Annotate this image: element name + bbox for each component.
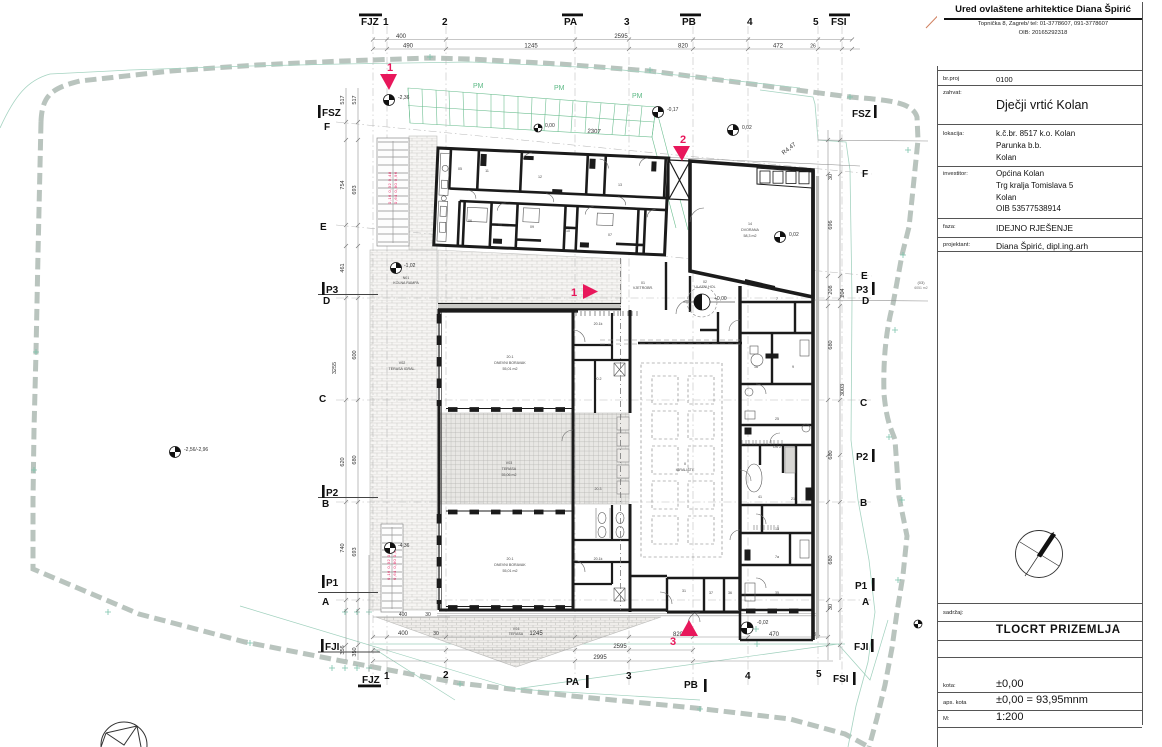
svg-text:2: 2 [443, 670, 449, 681]
svg-text:B: B [322, 499, 329, 510]
svg-text:41: 41 [758, 495, 762, 499]
svg-text:55,01 m2: 55,01 m2 [503, 569, 518, 573]
svg-text:10: 10 [566, 229, 570, 233]
svg-text:-2,56/-2,96: -2,56/-2,96 [184, 447, 208, 453]
svg-text:R4,47: R4,47 [781, 142, 798, 157]
svg-text:D: D [862, 296, 869, 307]
svg-text:TERASA: TERASA [509, 632, 524, 636]
svg-text:26: 26 [810, 44, 816, 50]
svg-text:0,16 0,32 0,48: 0,16 0,32 0,48 [387, 171, 392, 204]
svg-text:C: C [319, 394, 326, 405]
svg-text:TERASA IGRAL.: TERASA IGRAL. [389, 367, 416, 371]
svg-text:DNEVNI BORAVAK: DNEVNI BORAVAK [494, 361, 526, 365]
svg-text:P2: P2 [856, 452, 869, 463]
svg-text:FSI: FSI [831, 17, 847, 28]
svg-text:DNEVNI BORAVAK: DNEVNI BORAVAK [494, 563, 526, 567]
svg-text:470: 470 [769, 632, 780, 638]
svg-text:FJI: FJI [854, 642, 869, 653]
svg-text:01: 01 [641, 281, 645, 285]
svg-text:16: 16 [754, 365, 758, 369]
svg-text:-1,02: -1,02 [404, 263, 416, 269]
svg-text:4: 4 [747, 17, 753, 28]
svg-text:+0,00: +0,00 [714, 296, 727, 302]
svg-text:490: 490 [403, 44, 414, 50]
svg-text:V02: V02 [399, 361, 405, 365]
svg-text:680: 680 [828, 340, 834, 349]
svg-text:FSZ: FSZ [322, 108, 341, 119]
svg-text:1: 1 [387, 62, 393, 74]
svg-text:P3: P3 [856, 285, 869, 296]
svg-text:5: 5 [813, 17, 819, 28]
svg-text:400: 400 [398, 631, 409, 637]
svg-text:B: B [860, 498, 867, 509]
svg-text:11: 11 [485, 169, 489, 173]
svg-text:693: 693 [352, 185, 358, 194]
svg-text:(03): (03) [917, 280, 925, 285]
svg-text:08: 08 [498, 223, 502, 227]
svg-text:461: 461 [340, 263, 346, 272]
svg-text:N01: N01 [403, 276, 410, 280]
svg-text:5: 5 [816, 669, 822, 680]
svg-text:620: 620 [340, 457, 346, 466]
svg-text:V04: V04 [513, 627, 519, 631]
svg-text:PB: PB [682, 17, 696, 28]
svg-text:2995: 2995 [593, 655, 607, 661]
svg-text:1: 1 [384, 671, 390, 682]
svg-text:55,01 m2: 55,01 m2 [503, 367, 518, 371]
svg-text:20.3: 20.3 [595, 487, 602, 491]
svg-text:-2,36: -2,36 [398, 95, 410, 101]
svg-text:OS 2: OS 2 [773, 445, 781, 449]
svg-text:696: 696 [828, 220, 834, 229]
svg-text:2595: 2595 [614, 34, 628, 40]
svg-text:1245: 1245 [529, 631, 543, 637]
svg-text:PM: PM [473, 83, 484, 90]
svg-text:FJZ: FJZ [361, 17, 379, 28]
svg-text:20.1k: 20.1k [594, 557, 603, 561]
svg-text:3003: 3003 [840, 384, 846, 396]
svg-text:DVORANA: DVORANA [741, 228, 759, 232]
svg-text:820: 820 [678, 44, 689, 50]
svg-text:37: 37 [709, 591, 713, 595]
svg-text:204: 204 [840, 288, 846, 297]
svg-text:0,00: 0,00 [545, 123, 555, 129]
svg-text:20.2: 20.2 [595, 377, 602, 381]
svg-text:472: 472 [773, 44, 784, 50]
svg-text:9: 9 [792, 365, 794, 369]
svg-text:V03: V03 [506, 461, 512, 465]
svg-text:517: 517 [340, 95, 346, 104]
svg-text:ULAZNI HOL: ULAZNI HOL [694, 285, 715, 289]
svg-text:1245: 1245 [524, 44, 538, 50]
svg-text:0,02: 0,02 [789, 232, 799, 238]
svg-text:1: 1 [571, 287, 577, 299]
svg-text:E: E [861, 271, 868, 282]
svg-text:05: 05 [458, 167, 462, 171]
svg-text:35: 35 [775, 591, 779, 595]
svg-text:FSI: FSI [833, 674, 849, 685]
svg-text:693: 693 [352, 547, 358, 556]
svg-text:A: A [862, 597, 869, 608]
svg-text:4: 4 [745, 671, 751, 682]
svg-text:20.1k: 20.1k [594, 322, 603, 326]
svg-text:14: 14 [748, 222, 752, 226]
svg-text:400: 400 [399, 612, 408, 618]
svg-text:3: 3 [670, 636, 676, 648]
svg-text:30: 30 [828, 604, 834, 610]
svg-text:680: 680 [828, 555, 834, 564]
svg-text:-0,17: -0,17 [667, 107, 679, 113]
svg-text:7: 7 [776, 297, 778, 301]
svg-text:517: 517 [352, 95, 358, 104]
svg-text:07: 07 [608, 233, 612, 237]
svg-text:13: 13 [618, 183, 622, 187]
svg-text:E: E [320, 222, 327, 233]
svg-text:3: 3 [624, 17, 630, 28]
svg-text:06: 06 [468, 219, 472, 223]
svg-text:754: 754 [340, 180, 346, 189]
svg-text:356: 356 [340, 645, 346, 654]
svg-text:7a: 7a [775, 555, 779, 559]
svg-text:3: 3 [626, 671, 632, 682]
svg-text:VJETROBR.: VJETROBR. [633, 286, 653, 290]
svg-text:PM: PM [554, 85, 565, 92]
svg-text:IGRALIŠTE: IGRALIŠTE [676, 467, 695, 472]
svg-text:-0,02: -0,02 [757, 620, 769, 626]
svg-text:36: 36 [728, 591, 732, 595]
svg-text:-4,36: -4,36 [398, 543, 410, 549]
svg-text:PA: PA [566, 677, 579, 688]
svg-text:2595: 2595 [613, 644, 627, 650]
svg-text:3255: 3255 [332, 362, 338, 374]
svg-text:6051 m2: 6051 m2 [914, 286, 927, 290]
svg-text:600: 600 [352, 350, 358, 359]
svg-text:680: 680 [352, 455, 358, 464]
svg-text:P1: P1 [326, 578, 339, 589]
svg-text:C: C [860, 398, 867, 409]
svg-text:20.1: 20.1 [507, 355, 514, 359]
svg-text:2307: 2307 [587, 129, 601, 136]
svg-text:PM: PM [632, 93, 643, 100]
svg-text:PB: PB [684, 680, 698, 691]
svg-text:FSZ: FSZ [852, 109, 871, 120]
svg-text:0,64 0,80 0,96: 0,64 0,80 0,96 [393, 171, 398, 204]
svg-text:31: 31 [682, 589, 686, 593]
svg-text:F: F [862, 169, 868, 180]
svg-text:PA: PA [564, 17, 577, 28]
svg-text:25: 25 [775, 417, 779, 421]
svg-text:1: 1 [383, 17, 389, 28]
svg-text:400: 400 [396, 34, 407, 40]
svg-text:2: 2 [680, 134, 686, 146]
svg-text:A: A [322, 597, 329, 608]
svg-text:F: F [324, 122, 330, 133]
svg-text:350: 350 [352, 647, 358, 656]
svg-text:TERASA: TERASA [502, 467, 517, 471]
svg-text:P2: P2 [326, 488, 339, 499]
svg-text:FJZ: FJZ [362, 675, 380, 686]
svg-text:208: 208 [828, 285, 834, 294]
svg-text:13: 13 [775, 527, 779, 531]
svg-text:KOLNA RAMPA: KOLNA RAMPA [393, 281, 419, 285]
svg-text:D: D [323, 296, 330, 307]
svg-text:21: 21 [791, 497, 795, 501]
svg-text:30: 30 [425, 612, 431, 618]
svg-text:20.1: 20.1 [507, 557, 514, 561]
svg-text:740: 740 [340, 543, 346, 552]
svg-text:2: 2 [442, 17, 448, 28]
svg-text:30: 30 [433, 631, 439, 637]
svg-text:FJI: FJI [325, 642, 340, 653]
svg-text:II: II [684, 462, 686, 466]
svg-text:09: 09 [530, 225, 534, 229]
svg-text:58,3 m2: 58,3 m2 [744, 234, 757, 238]
svg-text:0,02: 0,02 [742, 125, 752, 131]
svg-text:12: 12 [538, 175, 542, 179]
svg-text:02: 02 [703, 280, 707, 284]
svg-text:P1: P1 [855, 581, 868, 592]
svg-text:30: 30 [828, 174, 834, 180]
svg-text:55,06 m2: 55,06 m2 [502, 473, 517, 477]
svg-text:P3: P3 [326, 285, 339, 296]
svg-text:680: 680 [828, 450, 834, 459]
